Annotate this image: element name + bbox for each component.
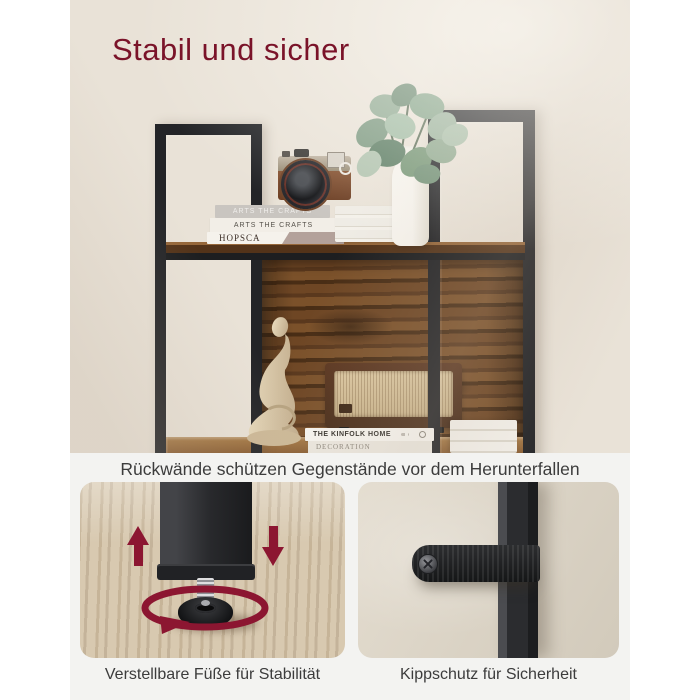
main-caption: Rückwände schützen Gegenstände vor dem H… — [70, 459, 630, 480]
up-arrow-head — [127, 526, 149, 545]
thinker-sculpture — [238, 316, 310, 448]
adjustable-foot-inset — [80, 482, 345, 658]
strap-wall-screw — [418, 554, 438, 574]
book-spine-logo — [419, 431, 426, 438]
book-spine-text: HOPSCA — [219, 233, 261, 243]
page-title: Stabil und sicher — [112, 32, 350, 68]
book-spine-text: ARTS THE CRAFTS — [234, 222, 313, 229]
camera-knob — [294, 149, 309, 157]
feet-caption: Verstellbare Füße für Stabilität — [80, 666, 345, 684]
rotate-arrow-icon — [138, 584, 272, 634]
antitip-caption: Kippschutz für Sicherheit — [358, 666, 619, 684]
book-spine-text: THE KINFOLK HOME — [313, 431, 391, 438]
book-spine-text: ARTS THE CRAFTS — [233, 208, 312, 215]
shelf-leg — [160, 482, 252, 570]
product-photo: Stabil und sicher THE KINFOLK HOME DECOR… — [70, 0, 630, 453]
shelf-top-support-bar — [166, 253, 525, 260]
camera-strap-lug — [339, 162, 352, 175]
book-hopsca: HOPSCA — [207, 232, 344, 244]
radio-label — [339, 404, 352, 413]
camera-lens — [281, 160, 330, 209]
feature-section: Rückwände schützen Gegenstände vor dem H… — [70, 453, 630, 700]
book-arts-crafts-white: ARTS THE CRAFTS — [210, 218, 337, 232]
down-arrow-shaft — [269, 526, 278, 548]
up-arrow-shaft — [134, 544, 143, 566]
book-spine-text: DECORATION — [316, 443, 371, 451]
down-arrow-head — [262, 547, 284, 566]
book-kinfolk: THE KINFOLK HOME — [305, 428, 434, 441]
camera-knob — [282, 151, 290, 157]
book-spine-script — [401, 433, 409, 436]
anti-tip-inset — [358, 482, 619, 658]
book-decoration: DECORATION — [308, 441, 432, 453]
